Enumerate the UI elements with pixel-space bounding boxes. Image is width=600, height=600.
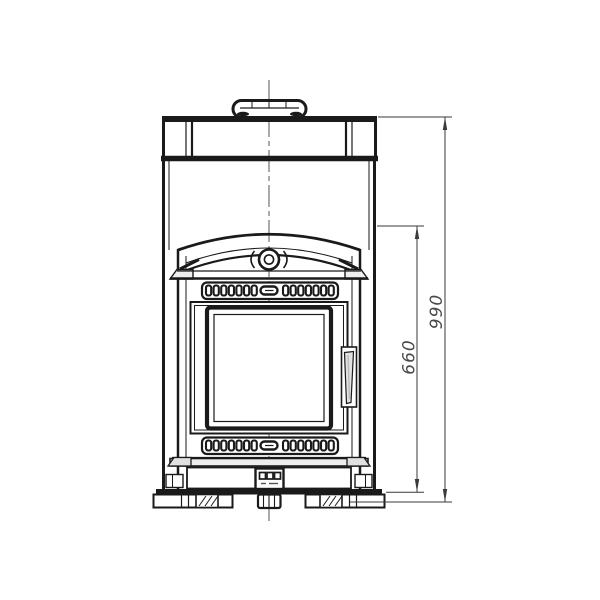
dimension-door-unit-height: 660: [377, 226, 424, 492]
dimension-overall-height: 990: [350, 117, 452, 502]
flue-collar: [233, 101, 306, 118]
door-glass: [207, 308, 331, 429]
drawing-canvas: 660 990: [0, 0, 600, 600]
lower-rail: [168, 458, 370, 467]
dimension-label-660: 660: [400, 339, 420, 374]
base-legs: [154, 492, 385, 508]
emblem-medallion: [251, 250, 287, 270]
dimension-label-990: 990: [427, 294, 447, 329]
stove-front-elevation-drawing: 660 990: [0, 0, 600, 600]
lower-vent-grille: [202, 438, 338, 455]
door-handle: [342, 347, 357, 407]
upper-vent-grille: [202, 283, 338, 300]
